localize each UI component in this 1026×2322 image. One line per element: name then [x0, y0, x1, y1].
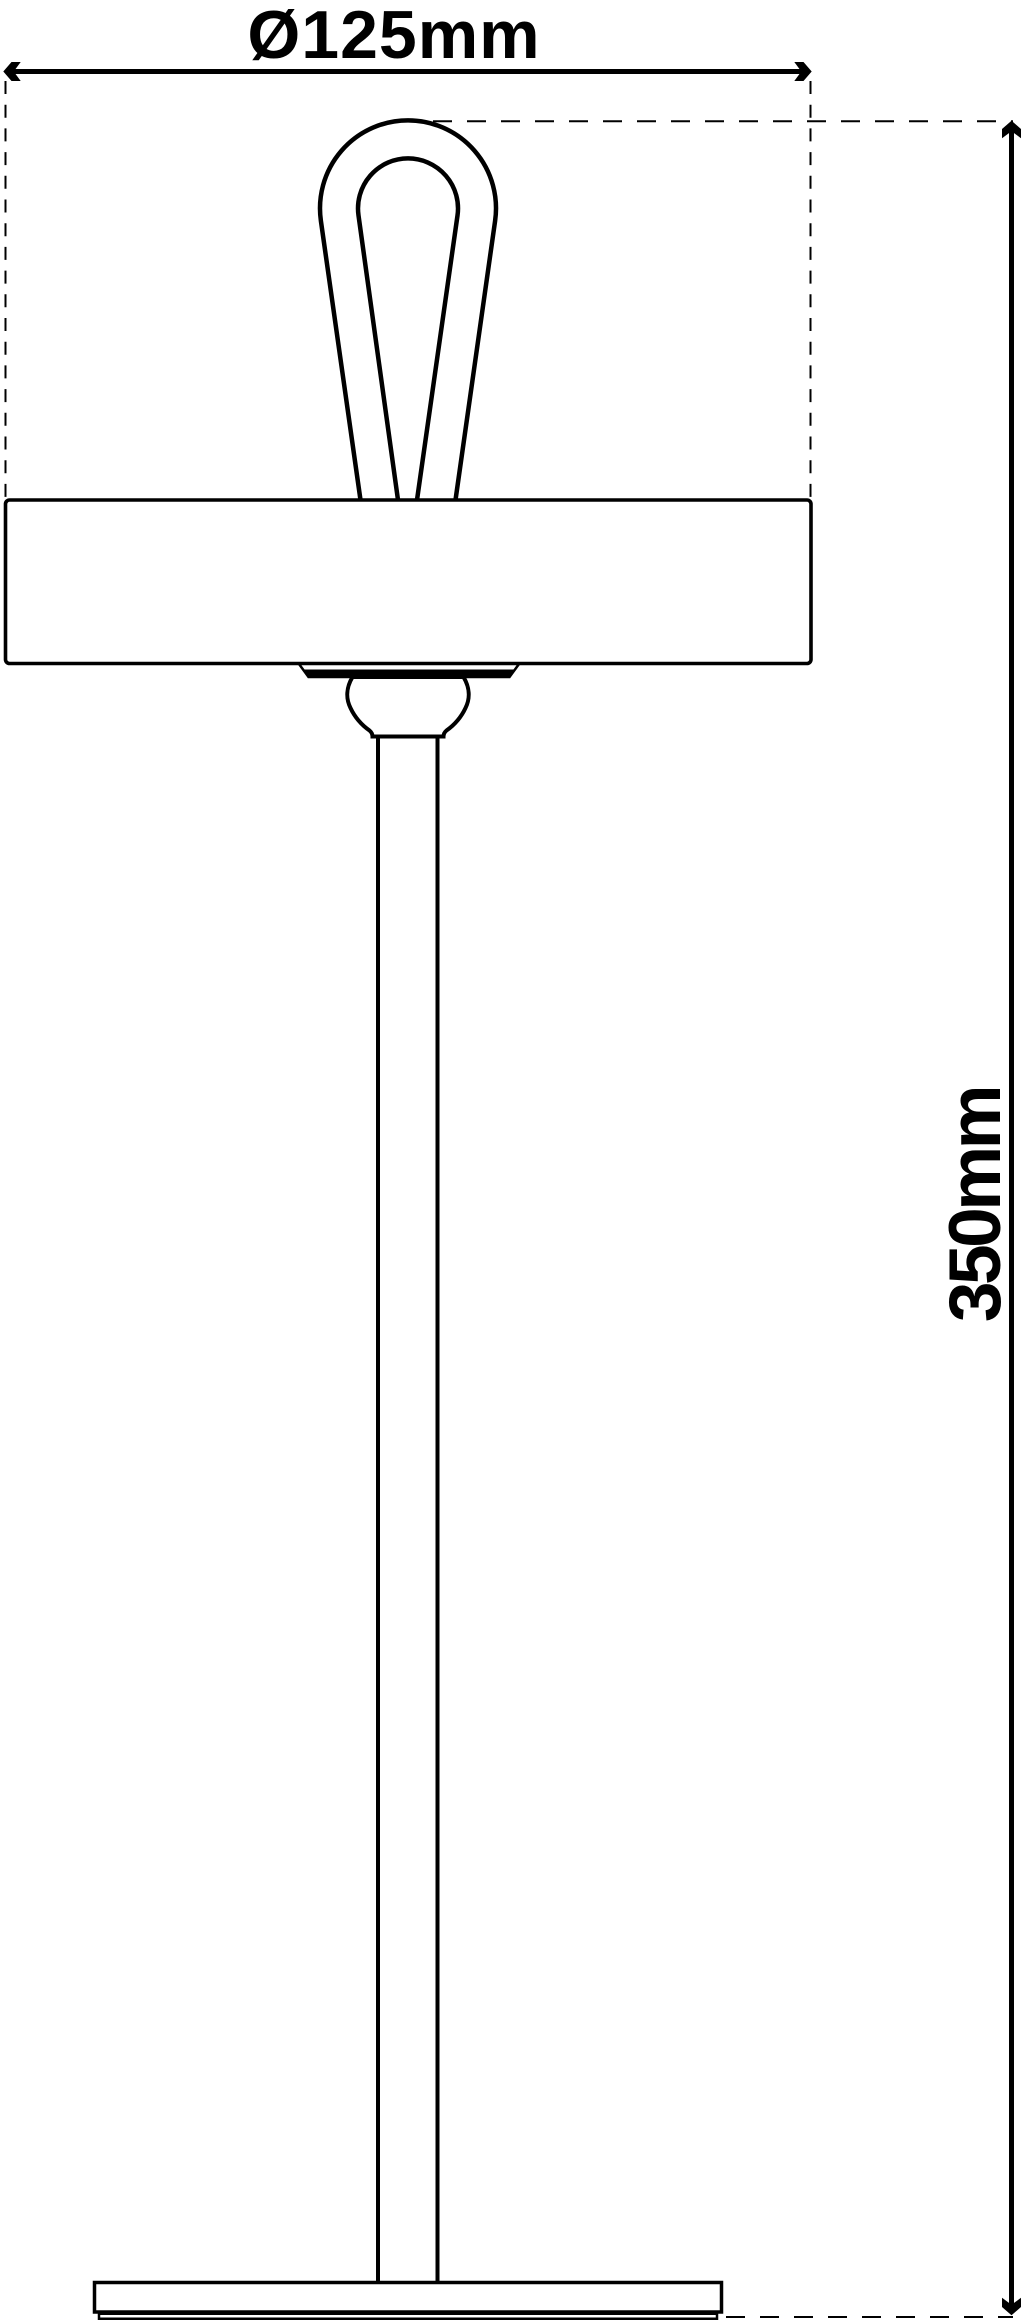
svg-text:350mm: 350mm	[935, 1088, 1016, 1322]
svg-text:Ø125mm: Ø125mm	[247, 0, 540, 73]
